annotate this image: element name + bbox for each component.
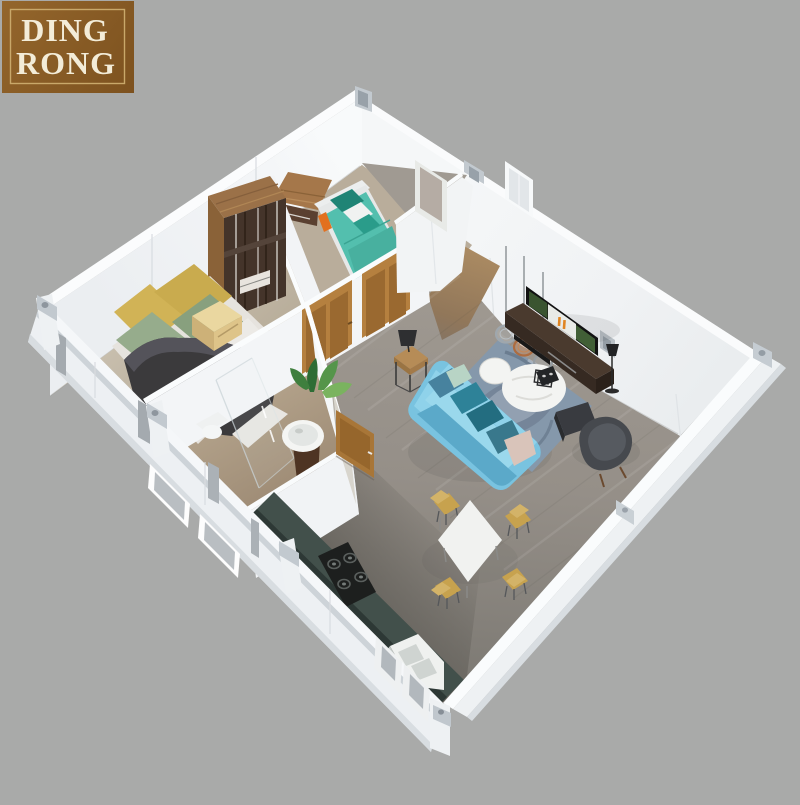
svg-text:RONG: RONG — [16, 45, 116, 81]
svg-text:DING: DING — [21, 12, 109, 48]
